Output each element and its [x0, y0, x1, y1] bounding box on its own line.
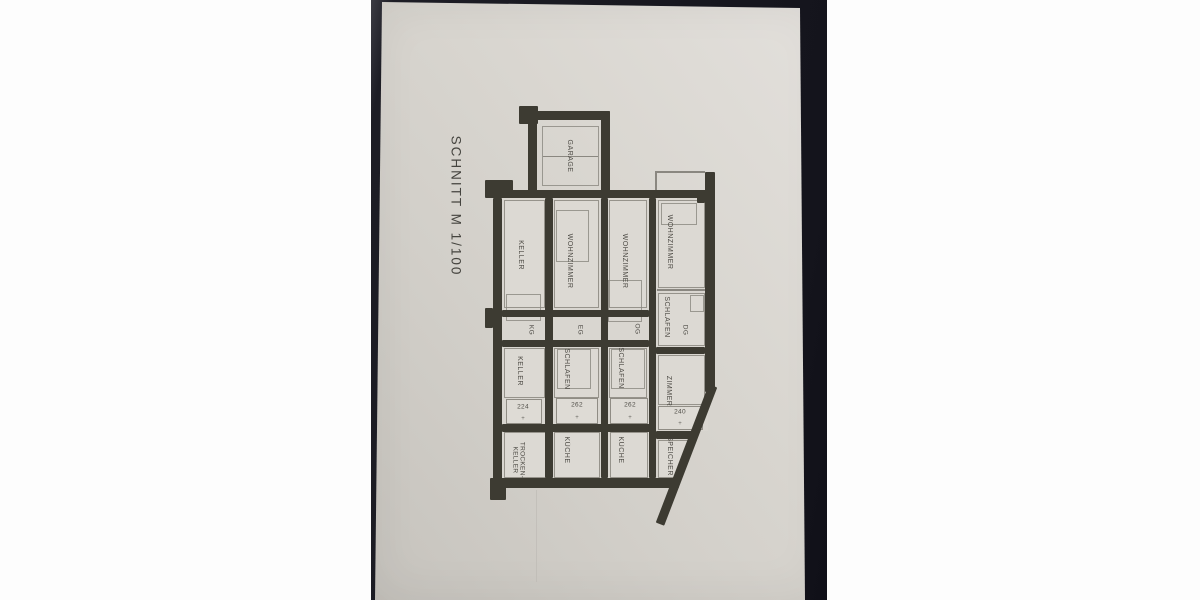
dimension-value-dg: 240 — [674, 409, 686, 416]
partition-wall-b — [502, 340, 649, 347]
floor-slab-og-dg — [649, 198, 656, 478]
label-wohnzimmer-dg: WOHNZIMMER — [665, 215, 673, 270]
dimension-tick-og: + — [628, 415, 632, 421]
garage-left-wall — [528, 111, 537, 198]
floor-slab-eg-og — [601, 198, 608, 478]
room-keller2-kg — [504, 348, 545, 398]
window-box-schlafen-dg — [690, 295, 704, 312]
label-kueche-eg: KÜCHE — [562, 436, 570, 463]
parapet-left-line — [655, 171, 657, 191]
room-keller-kg — [504, 200, 545, 308]
label-keller-kg: KELLER — [516, 240, 524, 270]
building-top-wall — [493, 190, 712, 198]
label-schlafen-dg: SCHLAFEN — [662, 296, 670, 337]
label-wohnzimmer-eg: WOHNZIMMER — [565, 234, 573, 289]
left-wall-top-cap — [485, 180, 513, 198]
dimension-tick-eg: + — [575, 415, 579, 421]
room-kueche-eg — [554, 432, 600, 478]
label-trockenkeller-kg: TROCKEN-KELLER — [511, 439, 526, 481]
dimension-value-kg: 224 — [517, 404, 529, 411]
label-floor-og: OG — [634, 324, 641, 335]
garage-right-wall — [601, 111, 610, 198]
label-speicher-dg: SPEICHER — [665, 436, 673, 476]
dg-partition-wall — [656, 347, 705, 354]
label-kueche-og: KÜCHE — [616, 436, 624, 463]
dimension-value-eg: 262 — [571, 402, 583, 409]
drawing-title: SCHNITT M 1/100 — [449, 136, 464, 277]
label-schlafen-eg: SCHLAFEN — [562, 348, 570, 389]
left-wall-protrusion — [485, 308, 493, 328]
label-garage: GARAGE — [565, 140, 573, 173]
label-schlafen-og: SCHLAFEN — [616, 347, 624, 388]
parapet-top-line — [655, 171, 705, 173]
building-right-wall — [705, 172, 715, 392]
label-zimmer-dg: ZIMMER — [664, 376, 672, 407]
building-left-wall — [493, 198, 502, 480]
dimension-tick-kg: + — [521, 416, 525, 422]
photo-of-section-drawing: SCHNITT M 1/100 GARAGE KELLER WOHNZIMMER… — [0, 0, 1200, 600]
label-floor-kg: KG — [528, 325, 535, 335]
label-floor-dg: DG — [682, 325, 689, 336]
garage-corner-post — [519, 106, 538, 124]
label-floor-eg: EG — [577, 325, 584, 335]
garage-top-wall — [528, 111, 610, 120]
dg-floor-line — [657, 289, 705, 291]
paper-crease-line — [536, 490, 537, 582]
label-wohnzimmer-og: WOHNZIMMER — [620, 234, 628, 289]
label-keller2-kg: KELLER — [515, 356, 523, 386]
building-bottom-wall — [502, 478, 679, 488]
floor-slab-kg-eg — [545, 198, 553, 478]
dimension-value-og: 262 — [624, 402, 636, 409]
partition-wall-c — [502, 424, 652, 432]
partition-wall-a — [502, 310, 649, 317]
dimension-tick-dg: + — [678, 421, 682, 427]
right-wall-protrusion — [697, 192, 705, 203]
